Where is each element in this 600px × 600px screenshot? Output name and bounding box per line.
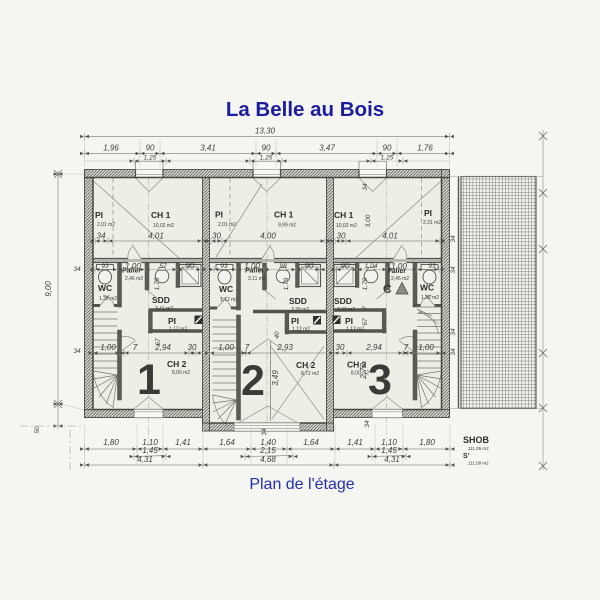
svg-text:1,96: 1,96 bbox=[103, 144, 119, 153]
svg-text:SDD: SDD bbox=[289, 296, 307, 306]
svg-text:CH 2: CH 2 bbox=[167, 359, 187, 369]
svg-text:PI: PI bbox=[291, 316, 299, 326]
svg-text:1,80: 1,80 bbox=[103, 438, 119, 447]
svg-text:Plan de l'étage: Plan de l'étage bbox=[249, 476, 354, 493]
svg-text:2,31 m2: 2,31 m2 bbox=[423, 220, 441, 226]
svg-text:1,38 m2: 1,38 m2 bbox=[99, 296, 117, 302]
svg-text:93: 93 bbox=[220, 263, 228, 270]
svg-text:1,00: 1,00 bbox=[100, 343, 116, 352]
svg-text:30: 30 bbox=[188, 343, 197, 352]
svg-text:13,30: 13,30 bbox=[255, 127, 276, 136]
svg-text:1,80: 1,80 bbox=[419, 438, 435, 447]
svg-text:CH 2: CH 2 bbox=[296, 360, 316, 370]
svg-text:9,00: 9,00 bbox=[44, 281, 53, 297]
svg-text:1,12 m2: 1,12 m2 bbox=[292, 327, 310, 333]
svg-text:2,94: 2,94 bbox=[365, 343, 382, 352]
svg-text:34: 34 bbox=[364, 420, 371, 428]
svg-text:34: 34 bbox=[450, 235, 457, 243]
svg-text:34: 34 bbox=[450, 266, 457, 274]
svg-text:WC: WC bbox=[98, 283, 112, 293]
svg-text:C: C bbox=[383, 282, 392, 296]
svg-text:90: 90 bbox=[186, 262, 195, 271]
svg-text:3,11 m2: 3,11 m2 bbox=[248, 276, 266, 282]
svg-text:57: 57 bbox=[159, 263, 167, 270]
svg-text:67: 67 bbox=[155, 338, 162, 346]
svg-text:4,31: 4,31 bbox=[384, 455, 400, 464]
svg-text:SDD: SDD bbox=[334, 296, 352, 306]
svg-text:1: 1 bbox=[137, 356, 161, 404]
svg-text:1,64: 1,64 bbox=[303, 438, 319, 447]
svg-text:3,41: 3,41 bbox=[200, 144, 216, 153]
svg-text:1,38 m2: 1,38 m2 bbox=[421, 295, 439, 301]
svg-text:PI: PI bbox=[215, 210, 223, 220]
svg-text:2,15: 2,15 bbox=[259, 446, 276, 455]
svg-text:8,00 m2: 8,00 m2 bbox=[172, 370, 190, 376]
svg-text:34: 34 bbox=[261, 428, 268, 436]
svg-text:90: 90 bbox=[262, 144, 271, 153]
svg-text:93: 93 bbox=[428, 263, 436, 270]
svg-text:7: 7 bbox=[362, 306, 369, 310]
svg-text:1,12 m2: 1,12 m2 bbox=[220, 297, 238, 303]
svg-text:La Belle au Bois: La Belle au Bois bbox=[226, 98, 384, 121]
svg-text:34: 34 bbox=[362, 183, 369, 191]
svg-text:1,76: 1,76 bbox=[417, 144, 433, 153]
svg-text:1,64: 1,64 bbox=[219, 438, 235, 447]
svg-text:67: 67 bbox=[362, 318, 369, 326]
svg-text:3: 3 bbox=[368, 356, 392, 404]
svg-text:1,25: 1,25 bbox=[144, 155, 157, 162]
svg-text:CH 1: CH 1 bbox=[151, 210, 171, 220]
svg-text:SHOB: SHOB bbox=[463, 435, 490, 445]
svg-text:34: 34 bbox=[73, 266, 81, 273]
svg-text:98: 98 bbox=[279, 263, 287, 270]
svg-text:30: 30 bbox=[336, 343, 345, 352]
svg-text:30: 30 bbox=[337, 232, 346, 241]
svg-text:4,01: 4,01 bbox=[382, 232, 398, 241]
svg-text:PI: PI bbox=[95, 210, 103, 220]
svg-text:3,00: 3,00 bbox=[365, 214, 372, 227]
svg-text:CH 1: CH 1 bbox=[334, 210, 354, 220]
svg-text:PI: PI bbox=[345, 316, 353, 326]
svg-text:7: 7 bbox=[404, 343, 409, 352]
svg-text:1,79: 1,79 bbox=[154, 277, 161, 290]
svg-text:1,04: 1,04 bbox=[365, 263, 378, 270]
svg-text:PI: PI bbox=[424, 208, 432, 218]
svg-text:1,45: 1,45 bbox=[142, 446, 158, 455]
svg-text:10,02 m2: 10,02 m2 bbox=[336, 223, 357, 229]
svg-text:2,93: 2,93 bbox=[276, 343, 293, 352]
svg-text:1,25: 1,25 bbox=[381, 155, 394, 162]
svg-text:3,47: 3,47 bbox=[319, 144, 335, 153]
svg-text:8,72 m2: 8,72 m2 bbox=[301, 371, 319, 377]
svg-text:93: 93 bbox=[101, 263, 109, 270]
svg-text:WC: WC bbox=[219, 284, 233, 294]
svg-text:34: 34 bbox=[450, 328, 457, 336]
svg-text:1,45: 1,45 bbox=[381, 446, 397, 455]
svg-text:4,00: 4,00 bbox=[260, 232, 276, 241]
svg-text:4,01: 4,01 bbox=[148, 232, 164, 241]
svg-text:1,00: 1,00 bbox=[218, 343, 234, 352]
svg-text:34: 34 bbox=[97, 232, 106, 241]
svg-text:1,41: 1,41 bbox=[175, 438, 191, 447]
svg-text:34: 34 bbox=[450, 348, 457, 356]
svg-text:WC: WC bbox=[420, 283, 434, 293]
svg-text:2,72: 2,72 bbox=[359, 363, 368, 380]
svg-text:90: 90 bbox=[305, 262, 314, 271]
svg-text:4,31: 4,31 bbox=[137, 455, 153, 464]
svg-text:1,12 m2: 1,12 m2 bbox=[346, 327, 364, 333]
svg-text:S': S' bbox=[463, 453, 470, 460]
svg-text:2,01 m2: 2,01 m2 bbox=[97, 222, 115, 228]
svg-text:1,41: 1,41 bbox=[347, 438, 363, 447]
svg-text:1,00: 1,00 bbox=[244, 262, 260, 271]
svg-text:111,09 m2: 111,09 m2 bbox=[468, 461, 489, 466]
svg-text:2: 2 bbox=[241, 357, 265, 405]
svg-text:3,41 m2: 3,41 m2 bbox=[337, 307, 355, 313]
svg-text:90: 90 bbox=[383, 144, 392, 153]
svg-text:3,41 m2: 3,41 m2 bbox=[155, 306, 173, 312]
svg-text:1,79: 1,79 bbox=[283, 277, 290, 290]
svg-text:1,00: 1,00 bbox=[418, 343, 434, 352]
svg-text:1,00: 1,00 bbox=[391, 262, 407, 271]
svg-text:90: 90 bbox=[146, 144, 155, 153]
svg-text:1,25: 1,25 bbox=[260, 155, 273, 162]
svg-text:30: 30 bbox=[212, 232, 221, 241]
svg-text:PI: PI bbox=[168, 316, 176, 326]
svg-text:4,68: 4,68 bbox=[260, 455, 276, 464]
svg-text:9,99 m2: 9,99 m2 bbox=[278, 223, 296, 229]
svg-text:50: 50 bbox=[34, 426, 41, 434]
svg-text:10,02 m2: 10,02 m2 bbox=[153, 223, 174, 229]
svg-text:7: 7 bbox=[245, 343, 250, 352]
svg-text:2,01 m2: 2,01 m2 bbox=[218, 222, 236, 228]
svg-text:7: 7 bbox=[133, 343, 138, 352]
svg-text:3,49: 3,49 bbox=[271, 370, 280, 386]
svg-text:111,09 m2: 111,09 m2 bbox=[468, 446, 489, 451]
svg-text:2,46 m2: 2,46 m2 bbox=[125, 276, 143, 282]
svg-text:CH 1: CH 1 bbox=[274, 210, 294, 220]
svg-text:3,39 m2: 3,39 m2 bbox=[291, 307, 309, 313]
svg-text:1,00: 1,00 bbox=[125, 262, 141, 271]
svg-text:2,45 m2: 2,45 m2 bbox=[391, 276, 409, 282]
svg-text:34: 34 bbox=[73, 348, 81, 355]
svg-text:90: 90 bbox=[341, 262, 350, 271]
svg-text:1,12 m2: 1,12 m2 bbox=[169, 327, 187, 333]
svg-text:1,79: 1,79 bbox=[362, 277, 369, 290]
svg-text:40: 40 bbox=[274, 331, 281, 339]
